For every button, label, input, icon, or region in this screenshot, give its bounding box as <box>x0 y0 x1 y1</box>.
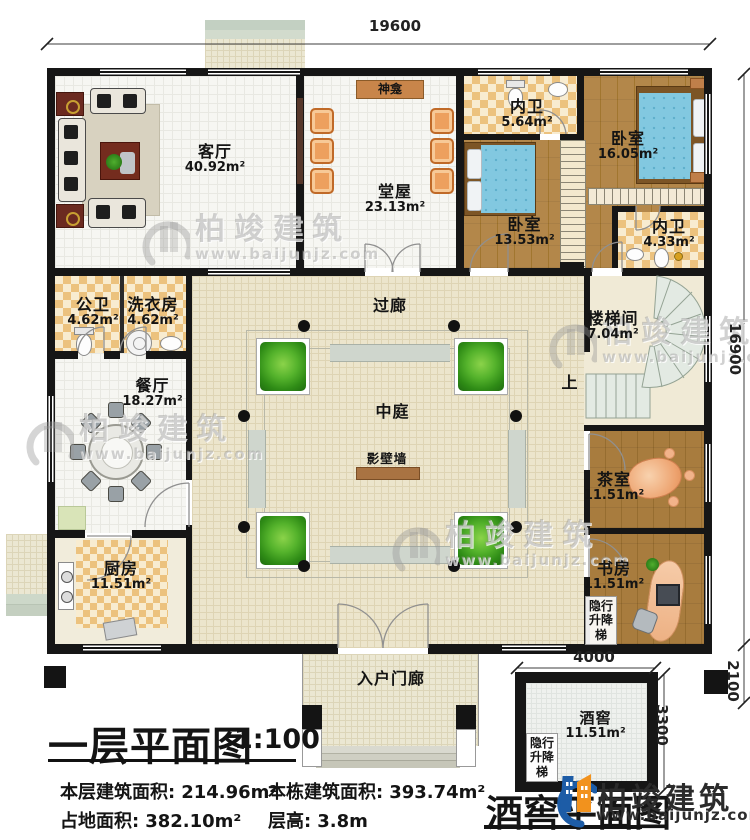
column <box>298 320 310 332</box>
room-label-hall: 堂屋 23.13m² <box>345 183 445 215</box>
hall-chair <box>310 108 334 134</box>
room-label-study: 书房 11.51m² <box>575 560 653 592</box>
planter-top-right <box>454 338 508 395</box>
walkway-left <box>248 430 266 508</box>
stat-land-area: 占地面积:382.10m² <box>60 807 241 833</box>
stair-up-label: 上 <box>558 374 582 392</box>
wall <box>660 206 704 212</box>
entry-porch-floor <box>302 654 479 746</box>
wall <box>186 525 192 648</box>
wall <box>560 262 584 268</box>
tree-icon <box>458 516 504 565</box>
window <box>83 644 161 654</box>
window <box>600 68 688 76</box>
wall <box>622 268 712 276</box>
toilet-tank <box>506 80 525 88</box>
sink <box>548 82 568 97</box>
tv-cabinet <box>297 98 303 184</box>
wall <box>132 530 192 538</box>
walkway-bottom <box>330 546 450 564</box>
walkway-right <box>508 430 526 508</box>
pier <box>44 666 66 688</box>
room-label-corridor: 过廊 <box>355 297 425 315</box>
wall <box>456 76 464 268</box>
wall <box>104 351 120 359</box>
side-table <box>56 204 84 228</box>
dim-height-right: 16900 <box>726 317 744 381</box>
sofa-bottom <box>88 198 146 228</box>
stat-building-area: 本栋建筑面积:393.74m² <box>268 778 485 804</box>
screen-wall-bar <box>356 467 420 480</box>
room-label-bedroom1: 卧室 16.05m² <box>583 130 673 162</box>
room-label-living: 客厅 40.92m² <box>165 143 265 175</box>
sliding-door <box>208 268 290 276</box>
room-label-bedroom2: 卧室 13.53m² <box>477 216 572 248</box>
shrine-label: 神龛 <box>378 82 402 96</box>
wall <box>120 268 208 276</box>
tree-icon <box>260 342 306 391</box>
window <box>704 94 712 174</box>
brand-logo-icon <box>551 770 597 832</box>
window <box>478 68 550 76</box>
hall-chair <box>310 138 334 164</box>
elevator-label-study: 隐行升降梯 <box>585 596 617 645</box>
room-label-kitchen: 厨房 11.51m² <box>80 560 162 592</box>
dim-width-top: 19600 <box>350 17 440 35</box>
brand-url: www.baijunjz.com <box>596 806 750 824</box>
column <box>238 410 250 422</box>
room-label-bath1: 内卫 5.64m² <box>487 98 567 130</box>
window <box>100 68 186 76</box>
hall-chair <box>430 108 454 134</box>
sofa-left <box>58 118 86 202</box>
wall <box>584 425 704 431</box>
planter-bottom-right <box>454 512 508 569</box>
column <box>238 521 250 533</box>
room-label-cellar: 酒窖 11.51m² <box>553 710 638 741</box>
window <box>208 68 300 76</box>
room-label-entry-porch: 入户门廊 <box>335 670 447 688</box>
wall <box>47 268 120 276</box>
window <box>704 316 712 382</box>
wall <box>146 351 192 359</box>
stove <box>58 562 74 610</box>
bed <box>464 142 536 216</box>
wall <box>290 268 365 276</box>
nightstand <box>690 172 705 183</box>
plan-scale: 1:100 <box>234 724 320 755</box>
tree-icon <box>458 342 504 391</box>
toilet <box>76 334 92 356</box>
porch-column-base <box>456 729 476 767</box>
dining-table <box>88 424 144 480</box>
wall <box>560 134 584 140</box>
sink <box>160 336 182 351</box>
room-label-stairwell: 楼梯间 7.04m² <box>573 310 653 342</box>
coffee-table <box>100 142 140 180</box>
monitor <box>656 584 680 606</box>
tea-stool <box>664 448 675 459</box>
hall-chair <box>430 138 454 164</box>
bath-lamp <box>674 252 683 261</box>
stat-floor-height: 层高:3.8m <box>268 807 368 833</box>
wall <box>47 530 85 538</box>
nightstand <box>690 78 705 89</box>
column <box>448 560 460 572</box>
wall <box>302 644 338 654</box>
stat-floor-area: 本层建筑面积:214.96m² <box>60 778 277 804</box>
side-table <box>56 92 84 116</box>
tree-icon <box>260 516 306 565</box>
room-label-dining: 餐厅 18.27m² <box>110 377 195 409</box>
column <box>510 410 522 422</box>
wall <box>577 76 584 134</box>
dining-mat <box>58 506 86 530</box>
window <box>47 396 55 482</box>
title-underline <box>48 759 296 762</box>
room-label-atrium: 中庭 <box>355 403 430 421</box>
window <box>704 444 712 502</box>
side-patio-steps <box>6 594 52 616</box>
toilet <box>654 248 669 268</box>
dining-chair <box>70 444 86 460</box>
entry-steps <box>316 746 460 768</box>
top-porch-step <box>205 20 305 30</box>
room-label-screen-wall: 影壁墙 <box>356 452 418 466</box>
dining-chair <box>108 486 124 502</box>
stairwell-floor <box>584 276 704 425</box>
planter-top-left <box>256 338 310 395</box>
wall <box>464 134 540 140</box>
window <box>502 644 566 654</box>
page-title: 一层平面图 <box>48 714 253 772</box>
window <box>704 556 712 624</box>
dining-chair <box>146 444 162 460</box>
wall <box>420 268 470 276</box>
floor-plan: 神龛 <box>0 0 750 840</box>
hall-chair <box>310 168 334 194</box>
column <box>298 560 310 572</box>
walkway-top <box>330 344 450 362</box>
room-label-tea: 茶室 11.51m² <box>575 471 653 503</box>
wardrobe <box>588 188 706 205</box>
wall <box>47 351 78 359</box>
side-patio <box>6 534 52 594</box>
dim-cellar-width: 4000 <box>562 648 626 666</box>
room-label-laundry: 洗衣房 4.62m² <box>113 296 193 328</box>
sofa-top <box>90 88 146 114</box>
room-label-bath2: 内卫 4.33m² <box>629 218 709 250</box>
dim-cellar-height: 3300 <box>653 695 671 755</box>
wall <box>508 268 592 276</box>
wall <box>428 644 477 654</box>
column <box>448 320 460 332</box>
top-porch-step <box>205 30 305 39</box>
column <box>510 521 522 533</box>
tea-stool <box>684 470 695 481</box>
shrine-bar: 神龛 <box>356 80 424 99</box>
dim-porch-depth: 2100 <box>724 651 742 711</box>
porch-column <box>456 705 476 729</box>
wall <box>584 528 704 534</box>
tea-stool <box>668 496 679 507</box>
wall <box>47 68 55 654</box>
wall <box>612 212 618 268</box>
